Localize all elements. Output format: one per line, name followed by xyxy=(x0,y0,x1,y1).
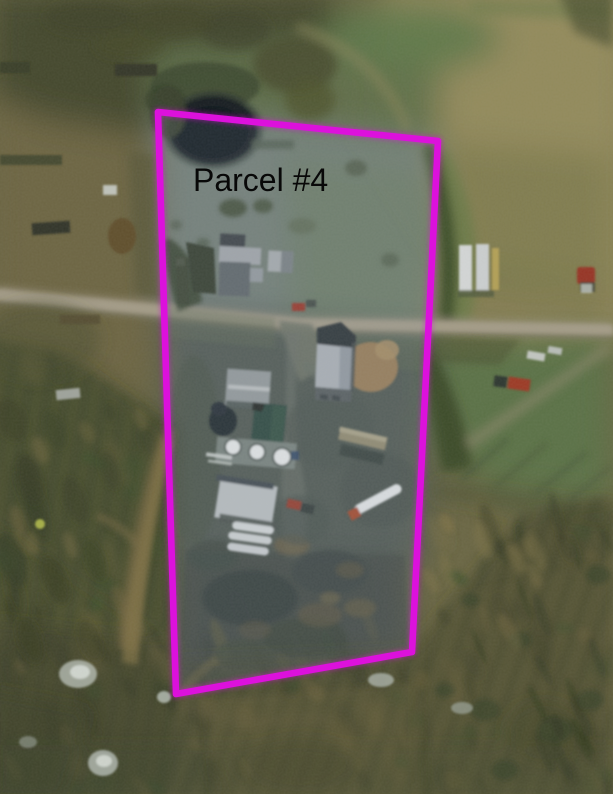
svg-text:Parcel #4: Parcel #4 xyxy=(193,162,328,198)
